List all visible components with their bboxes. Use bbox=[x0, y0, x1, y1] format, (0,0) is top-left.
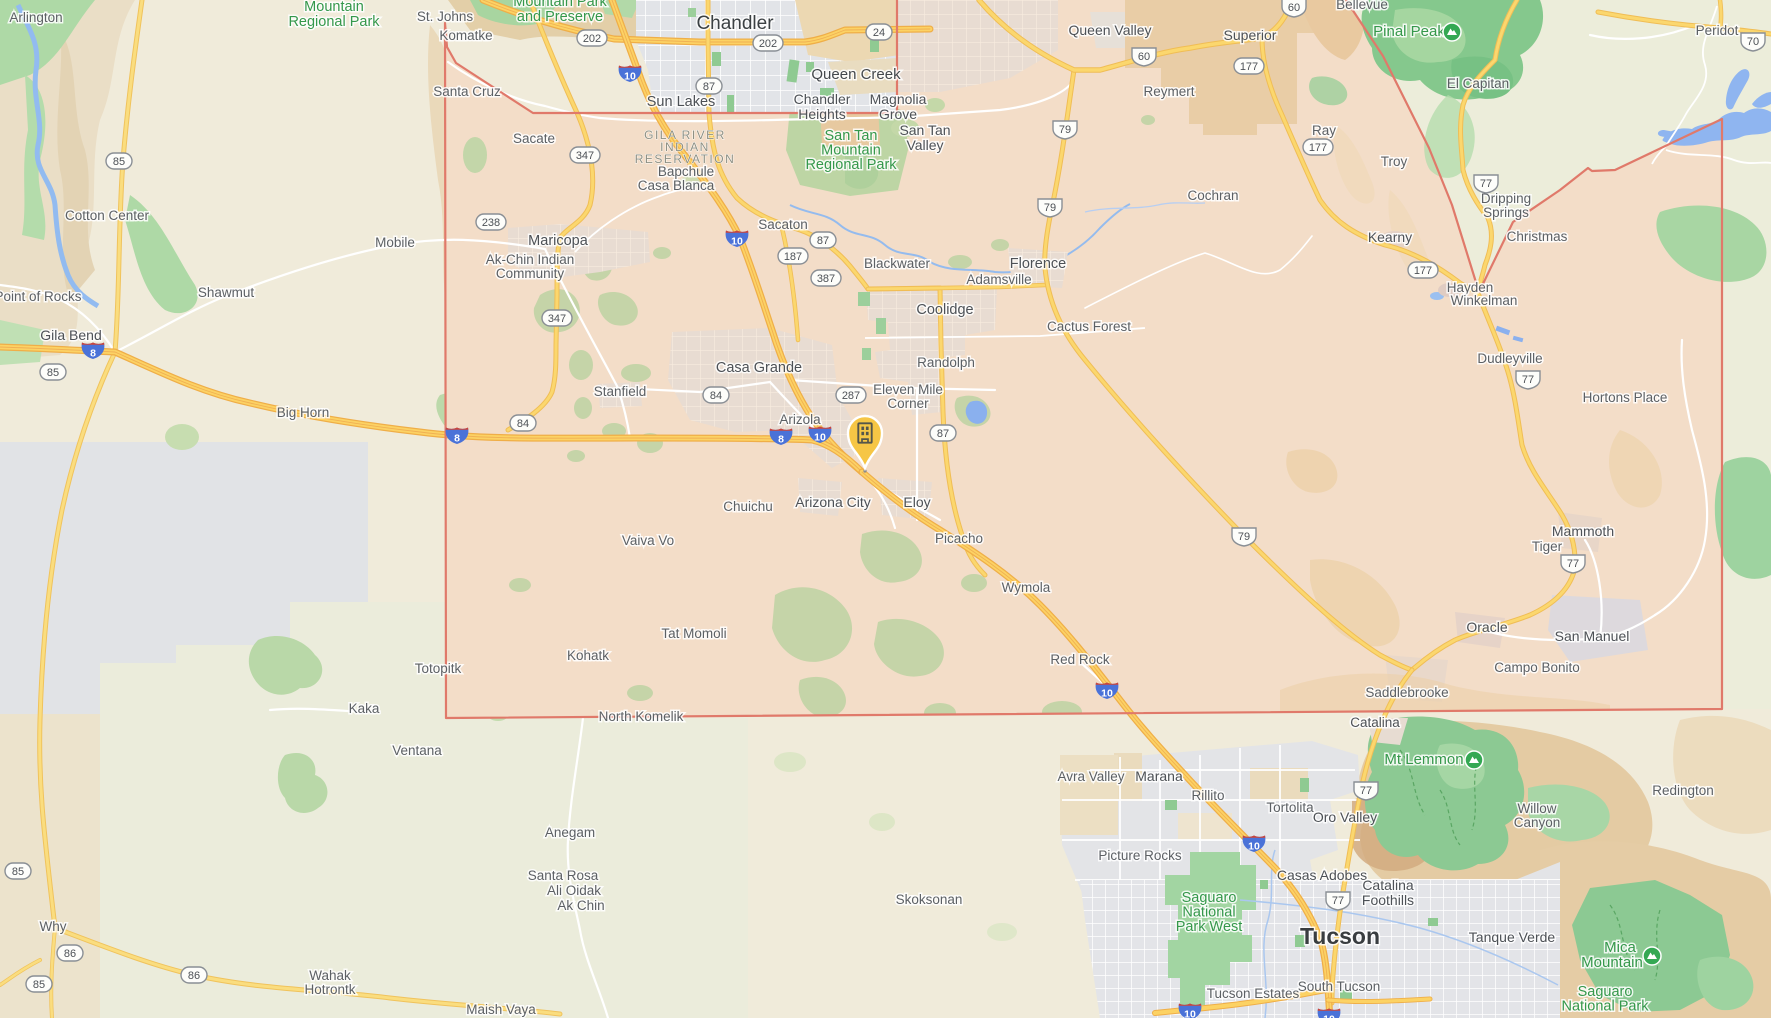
svg-text:77: 77 bbox=[1480, 178, 1492, 190]
svg-text:Arlington: Arlington bbox=[9, 10, 62, 25]
svg-text:347: 347 bbox=[548, 313, 566, 325]
svg-text:Queen Valley: Queen Valley bbox=[1068, 22, 1151, 38]
svg-text:Casa Blanca: Casa Blanca bbox=[638, 178, 715, 193]
svg-text:Casas Adobes: Casas Adobes bbox=[1277, 867, 1367, 883]
svg-text:Anegam: Anegam bbox=[545, 825, 595, 840]
svg-text:87: 87 bbox=[703, 81, 715, 93]
svg-text:77: 77 bbox=[1332, 895, 1344, 907]
svg-text:Eloy: Eloy bbox=[903, 494, 930, 510]
svg-text:El Capitan: El Capitan bbox=[1447, 76, 1509, 91]
svg-text:10: 10 bbox=[1184, 1009, 1196, 1018]
svg-text:Sacaton: Sacaton bbox=[758, 217, 808, 232]
svg-text:10: 10 bbox=[1248, 841, 1260, 853]
svg-text:79: 79 bbox=[1059, 124, 1071, 136]
svg-text:Sun Lakes: Sun Lakes bbox=[647, 94, 716, 110]
svg-text:Pinal Peak: Pinal Peak bbox=[1373, 23, 1445, 40]
svg-text:Chandler: Chandler bbox=[794, 91, 851, 107]
svg-text:8: 8 bbox=[778, 434, 784, 446]
svg-text:Arizona City: Arizona City bbox=[795, 494, 870, 510]
svg-text:Stanfield: Stanfield bbox=[594, 384, 647, 399]
svg-text:Marana: Marana bbox=[1135, 768, 1183, 784]
svg-text:Valley: Valley bbox=[906, 137, 943, 153]
svg-text:Ventana: Ventana bbox=[392, 743, 442, 758]
svg-text:Superior: Superior bbox=[1224, 27, 1277, 43]
svg-text:San Manuel: San Manuel bbox=[1555, 628, 1630, 644]
svg-text:Reymert: Reymert bbox=[1143, 84, 1194, 99]
svg-text:Santa Rosa: Santa Rosa bbox=[528, 868, 599, 883]
svg-text:Ray: Ray bbox=[1312, 123, 1336, 138]
svg-text:Maricopa: Maricopa bbox=[528, 233, 589, 249]
svg-text:Rillito: Rillito bbox=[1191, 788, 1224, 803]
svg-text:Winkelman: Winkelman bbox=[1451, 293, 1518, 308]
svg-text:Mammoth: Mammoth bbox=[1552, 523, 1614, 539]
svg-text:Springs: Springs bbox=[1483, 205, 1529, 220]
svg-text:Oro Valley: Oro Valley bbox=[1313, 809, 1377, 825]
svg-text:86: 86 bbox=[188, 970, 200, 982]
svg-text:10: 10 bbox=[1101, 688, 1113, 700]
svg-text:202: 202 bbox=[759, 38, 777, 50]
svg-text:Mt Lemmon: Mt Lemmon bbox=[1384, 751, 1463, 768]
svg-text:Tortolita: Tortolita bbox=[1266, 800, 1314, 815]
svg-text:Hotrontk: Hotrontk bbox=[304, 982, 355, 997]
svg-text:and Preserve: and Preserve bbox=[517, 9, 603, 25]
svg-text:Cochran: Cochran bbox=[1187, 188, 1238, 203]
svg-text:79: 79 bbox=[1238, 531, 1250, 543]
svg-text:Catalina: Catalina bbox=[1362, 877, 1414, 893]
svg-text:Tucson: Tucson bbox=[1300, 923, 1380, 949]
svg-text:Blackwater: Blackwater bbox=[864, 256, 931, 271]
svg-text:Shawmut: Shawmut bbox=[198, 285, 255, 300]
svg-text:Tat Momoli: Tat Momoli bbox=[661, 626, 726, 641]
svg-text:Santa Cruz: Santa Cruz bbox=[433, 84, 501, 99]
svg-text:77: 77 bbox=[1522, 374, 1534, 386]
svg-text:Wymola: Wymola bbox=[1002, 580, 1051, 595]
svg-text:Gila Bend: Gila Bend bbox=[40, 327, 101, 343]
svg-text:Eleven Mile: Eleven Mile bbox=[873, 382, 943, 397]
svg-text:Kearny: Kearny bbox=[1368, 229, 1412, 245]
svg-text:85: 85 bbox=[33, 979, 45, 991]
svg-text:Kaka: Kaka bbox=[349, 701, 380, 716]
svg-text:177: 177 bbox=[1240, 61, 1258, 73]
svg-text:Cactus Forest: Cactus Forest bbox=[1047, 319, 1131, 334]
svg-text:Big Horn: Big Horn bbox=[277, 405, 330, 420]
svg-text:National Park: National Park bbox=[1561, 999, 1649, 1015]
svg-text:Adamsville: Adamsville bbox=[966, 272, 1031, 287]
svg-text:85: 85 bbox=[12, 866, 24, 878]
svg-text:Komatke: Komatke bbox=[439, 28, 492, 43]
svg-text:Catalina: Catalina bbox=[1350, 715, 1400, 730]
svg-text:8: 8 bbox=[90, 348, 96, 360]
svg-text:Tucson Estates: Tucson Estates bbox=[1207, 986, 1300, 1001]
svg-text:Bellevue: Bellevue bbox=[1336, 0, 1388, 12]
svg-text:Arizola: Arizola bbox=[779, 412, 821, 427]
svg-text:Ali Oidak: Ali Oidak bbox=[547, 883, 601, 898]
svg-text:Ak Chin: Ak Chin bbox=[557, 898, 604, 913]
svg-text:Regional Park: Regional Park bbox=[288, 14, 380, 30]
svg-text:177: 177 bbox=[1309, 142, 1327, 154]
svg-text:8: 8 bbox=[454, 433, 460, 445]
svg-text:Dripping: Dripping bbox=[1481, 191, 1531, 206]
svg-text:Willow: Willow bbox=[1518, 801, 1557, 816]
svg-text:Picture Rocks: Picture Rocks bbox=[1098, 848, 1182, 863]
svg-text:Mountain: Mountain bbox=[304, 0, 364, 15]
svg-text:347: 347 bbox=[576, 150, 594, 162]
svg-text:24: 24 bbox=[873, 27, 885, 39]
svg-text:Ak-Chin Indian: Ak-Chin Indian bbox=[486, 252, 575, 267]
svg-text:187: 187 bbox=[784, 251, 802, 263]
svg-text:Red Rock: Red Rock bbox=[1050, 652, 1110, 667]
svg-text:Coolidge: Coolidge bbox=[916, 302, 973, 318]
svg-text:Foothills: Foothills bbox=[1362, 892, 1414, 908]
svg-text:Maish Vaya: Maish Vaya bbox=[466, 1002, 536, 1017]
svg-text:Dudleyville: Dudleyville bbox=[1477, 351, 1542, 366]
svg-text:79: 79 bbox=[1044, 202, 1056, 214]
svg-text:177: 177 bbox=[1414, 265, 1432, 277]
svg-text:Park West: Park West bbox=[1176, 919, 1243, 935]
svg-text:Kohatk: Kohatk bbox=[567, 648, 609, 663]
svg-text:Picacho: Picacho bbox=[935, 531, 983, 546]
svg-text:Mobile: Mobile bbox=[375, 235, 415, 250]
svg-text:Corner: Corner bbox=[887, 396, 929, 411]
svg-text:Canyon: Canyon bbox=[1514, 815, 1561, 830]
svg-text:238: 238 bbox=[482, 217, 500, 229]
svg-text:387: 387 bbox=[817, 273, 835, 285]
svg-text:10: 10 bbox=[731, 236, 743, 248]
svg-text:Peridot: Peridot bbox=[1696, 23, 1739, 38]
svg-text:60: 60 bbox=[1138, 51, 1150, 63]
svg-text:Wahak: Wahak bbox=[309, 968, 351, 983]
svg-text:Tiger: Tiger bbox=[1532, 539, 1563, 554]
svg-text:Heights: Heights bbox=[798, 106, 845, 122]
svg-text:Point of Rocks: Point of Rocks bbox=[0, 289, 82, 304]
svg-text:Campo Bonito: Campo Bonito bbox=[1494, 660, 1580, 675]
svg-text:Casa Grande: Casa Grande bbox=[716, 360, 802, 376]
svg-text:10: 10 bbox=[1323, 1014, 1335, 1018]
svg-text:84: 84 bbox=[517, 418, 529, 430]
svg-text:Mountain: Mountain bbox=[1581, 954, 1643, 971]
svg-text:77: 77 bbox=[1360, 785, 1372, 797]
svg-text:77: 77 bbox=[1567, 558, 1579, 570]
svg-text:Sacate: Sacate bbox=[513, 131, 555, 146]
svg-text:Why: Why bbox=[40, 919, 67, 934]
svg-text:San Tan: San Tan bbox=[899, 122, 950, 138]
svg-text:Grove: Grove bbox=[879, 106, 917, 122]
svg-text:Tanque Verde: Tanque Verde bbox=[1469, 929, 1556, 945]
svg-text:70: 70 bbox=[1747, 36, 1759, 48]
svg-text:10: 10 bbox=[814, 432, 826, 444]
svg-text:Troy: Troy bbox=[1381, 154, 1408, 169]
svg-text:10: 10 bbox=[624, 71, 636, 83]
svg-text:Christmas: Christmas bbox=[1507, 229, 1568, 244]
svg-text:Cotton Center: Cotton Center bbox=[65, 208, 150, 223]
svg-text:Saddlebrooke: Saddlebrooke bbox=[1365, 685, 1448, 700]
svg-text:Hortons Place: Hortons Place bbox=[1583, 390, 1668, 405]
svg-text:Community: Community bbox=[496, 266, 565, 281]
svg-text:South Tucson: South Tucson bbox=[1298, 979, 1381, 994]
svg-text:Chandler: Chandler bbox=[696, 13, 774, 34]
svg-text:Avra Valley: Avra Valley bbox=[1057, 769, 1124, 784]
svg-text:Regional Park: Regional Park bbox=[805, 157, 897, 173]
svg-text:87: 87 bbox=[937, 428, 949, 440]
svg-text:202: 202 bbox=[583, 33, 601, 45]
svg-text:Vaiva Vo: Vaiva Vo bbox=[622, 533, 674, 548]
svg-text:85: 85 bbox=[47, 367, 59, 379]
svg-text:85: 85 bbox=[113, 156, 125, 168]
svg-text:Redington: Redington bbox=[1652, 783, 1714, 798]
svg-text:84: 84 bbox=[710, 390, 722, 402]
svg-text:Oracle: Oracle bbox=[1466, 619, 1507, 635]
svg-text:86: 86 bbox=[64, 948, 76, 960]
svg-text:Florence: Florence bbox=[1010, 256, 1066, 272]
svg-text:North Komelik: North Komelik bbox=[599, 709, 684, 724]
svg-text:Queen Creek: Queen Creek bbox=[811, 66, 901, 83]
svg-text:287: 287 bbox=[842, 390, 860, 402]
svg-text:Randolph: Randolph bbox=[917, 355, 975, 370]
svg-text:60: 60 bbox=[1288, 2, 1300, 14]
svg-text:Bapchule: Bapchule bbox=[658, 164, 714, 179]
svg-text:Chuichu: Chuichu bbox=[723, 499, 773, 514]
svg-text:87: 87 bbox=[817, 235, 829, 247]
svg-text:Magnolia: Magnolia bbox=[870, 91, 927, 107]
svg-text:Skoksonan: Skoksonan bbox=[896, 892, 963, 907]
svg-text:Totopitk: Totopitk bbox=[415, 661, 462, 676]
svg-text:St. Johns: St. Johns bbox=[417, 9, 474, 24]
